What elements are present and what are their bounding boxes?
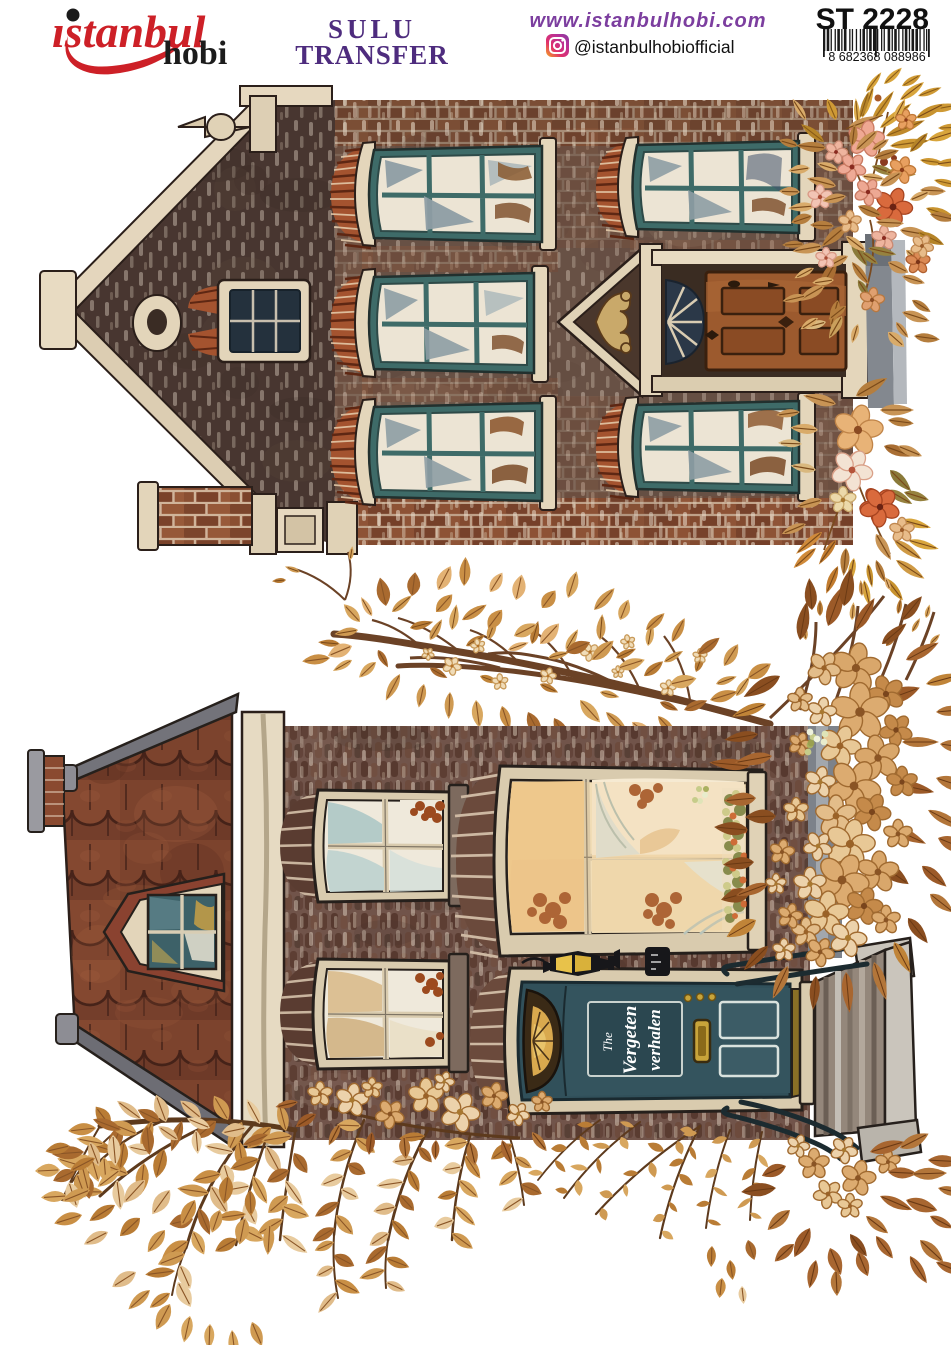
svg-text:@istanbulhobiofficial: @istanbulhobiofficial (574, 37, 734, 57)
svg-text:verhalen: verhalen (645, 1009, 664, 1070)
svg-text:hobi: hobi (163, 35, 227, 72)
svg-text:www.istanbulhobi.com: www.istanbulhobi.com (529, 10, 766, 32)
svg-text:The: The (600, 1032, 615, 1052)
svg-text:8 682368 088986: 8 682368 088986 (828, 50, 925, 64)
svg-text:TRANSFER: TRANSFER (295, 40, 449, 70)
svg-text:Vergeten: Vergeten (620, 1006, 641, 1075)
